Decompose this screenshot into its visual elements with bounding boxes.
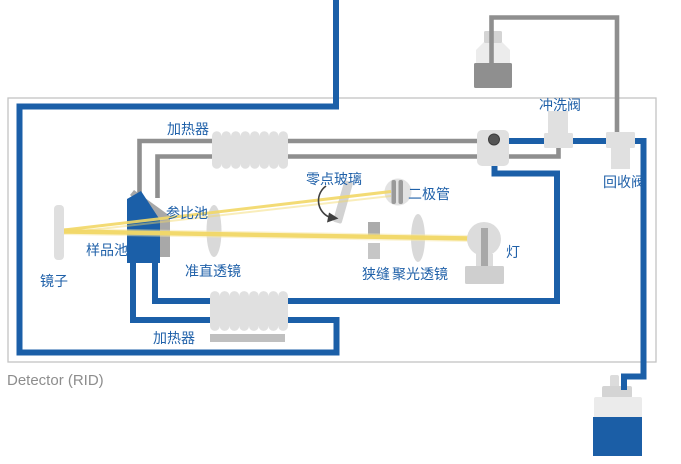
flush-valve-base bbox=[544, 133, 573, 148]
heater-bottom-coil bbox=[210, 291, 288, 331]
label-reference-cell: 参比池 bbox=[166, 205, 208, 222]
label-condensing-lens: 聚光透镜 bbox=[392, 267, 448, 283]
label-slit: 狭缝 bbox=[362, 267, 390, 283]
lamp-base bbox=[465, 266, 504, 284]
waste-bottle-shoulder bbox=[594, 397, 642, 419]
recycle-valve-stem bbox=[611, 147, 630, 169]
label-collimating-lens: 准直透镜 bbox=[185, 263, 241, 280]
mirror-shape bbox=[54, 205, 64, 260]
label-flush-valve: 冲洗阀 bbox=[539, 98, 581, 114]
label-sample-cell: 样品池 bbox=[86, 243, 128, 259]
waste-bottle-liquid bbox=[593, 417, 642, 456]
rid-flow-diagram-svg: 加热器 参比池 样品池 镜子 准直透镜 零点玻璃 二极管 狭缝 聚光透镜 灯 冲… bbox=[0, 0, 681, 464]
label-heater-bottom: 加热器 bbox=[153, 331, 195, 347]
heater-bottom-block bbox=[210, 334, 285, 342]
slit-bottom-block bbox=[368, 243, 380, 259]
label-mirror: 镜子 bbox=[40, 274, 68, 290]
label-recycle-valve: 回收阀 bbox=[603, 175, 645, 191]
flush-valve-stem bbox=[548, 111, 568, 136]
diode-bar-left bbox=[392, 180, 397, 204]
heater-top-coil bbox=[212, 131, 288, 169]
waste-bottle-cap bbox=[602, 386, 632, 398]
diode-bar-right bbox=[399, 180, 404, 204]
waste-bottle bbox=[593, 375, 642, 456]
label-zero-glass: 零点玻璃 bbox=[306, 171, 362, 188]
purge-valve-knob bbox=[489, 134, 500, 145]
lamp-filament-stem bbox=[481, 228, 488, 267]
rid-flow-diagram: 加热器 参比池 样品池 镜子 准直透镜 零点玻璃 二极管 狭缝 聚光透镜 灯 冲… bbox=[0, 0, 681, 464]
recycle-bottle-liquid bbox=[474, 63, 512, 88]
label-heater-top: 加热器 bbox=[167, 122, 209, 138]
diagram-title: Detector (RID) bbox=[7, 372, 104, 389]
label-diode: 二极管 bbox=[408, 187, 450, 203]
label-lamp: 灯 bbox=[506, 245, 520, 261]
recycle-valve-top bbox=[606, 132, 635, 148]
